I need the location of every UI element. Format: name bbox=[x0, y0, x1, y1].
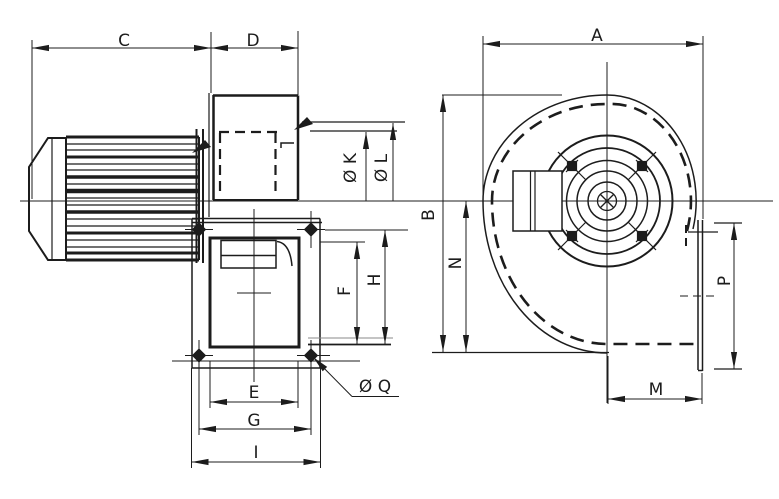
dim-label-b: B bbox=[419, 209, 439, 221]
dimensions bbox=[32, 31, 742, 468]
linework bbox=[20, 31, 773, 468]
dim-label-c: C bbox=[118, 31, 130, 51]
inlet-lip-curl bbox=[281, 143, 294, 148]
fan-dimension-drawing: C D A Ø K Ø L B N F H E G I Ø Q M P bbox=[0, 0, 779, 499]
hidden-inlet-opening bbox=[219, 132, 277, 196]
motor-end-cap bbox=[29, 138, 66, 260]
dim-label-dia-l: Ø L bbox=[372, 153, 392, 182]
dim-label-dia-q: Ø Q bbox=[359, 377, 391, 397]
dim-label-m: M bbox=[649, 380, 664, 400]
drawing-sheet: C D A Ø K Ø L B N F H E G I Ø Q M P bbox=[0, 0, 779, 499]
dim-label-e: E bbox=[249, 383, 260, 403]
volute-curve bbox=[277, 242, 292, 267]
dim-label-i: I bbox=[253, 443, 258, 463]
dim-label-h: H bbox=[365, 274, 385, 287]
dim-label-a: A bbox=[591, 26, 603, 46]
terminal-box bbox=[513, 171, 562, 231]
bolt-mark bbox=[628, 152, 656, 180]
dim-label-p: P bbox=[715, 276, 735, 286]
dim-label-g: G bbox=[247, 411, 260, 431]
pointer-wedge-motor-flange bbox=[192, 140, 211, 153]
dim-label-n: N bbox=[446, 257, 466, 270]
bolt-mark bbox=[628, 222, 656, 250]
dim-label-d: D bbox=[246, 31, 259, 51]
front-view bbox=[432, 95, 719, 371]
housing-side-plate bbox=[209, 93, 298, 217]
side-view bbox=[29, 93, 393, 371]
motor-fins bbox=[67, 144, 198, 253]
dim-label-f: F bbox=[335, 286, 355, 296]
dim-label-dia-k: Ø K bbox=[341, 152, 361, 183]
